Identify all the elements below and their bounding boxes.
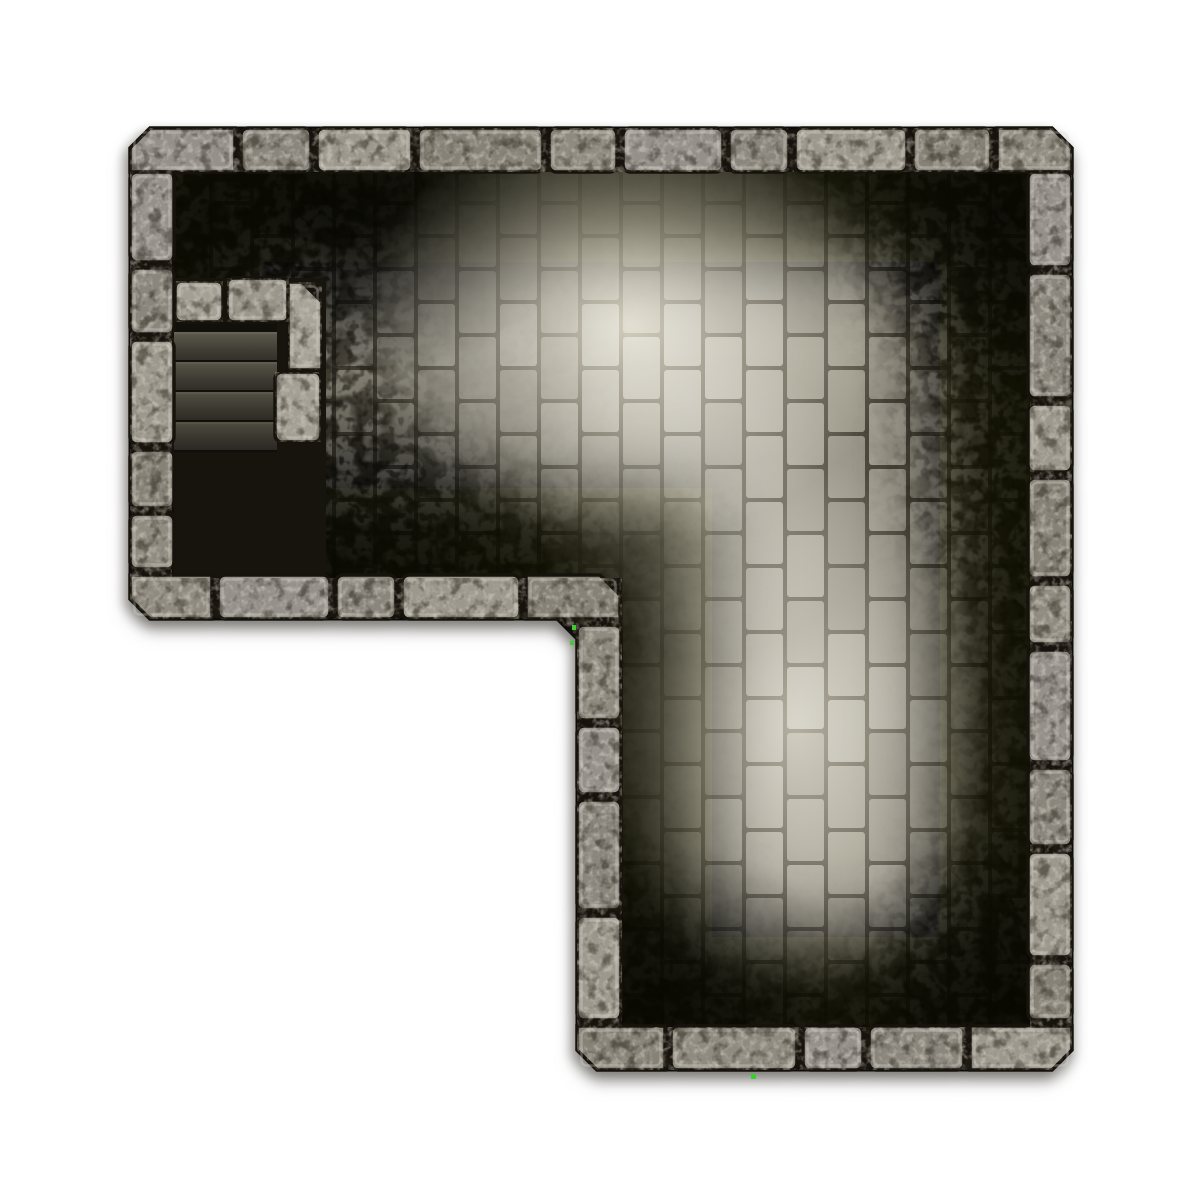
dungeon-room xyxy=(0,0,1200,1200)
grid-marker-artifact xyxy=(572,625,576,630)
grid-marker-artifact xyxy=(751,1074,756,1079)
dungeon-map-canvas xyxy=(0,0,1200,1200)
stair-step xyxy=(174,332,277,361)
grid-marker-artifact xyxy=(570,641,574,645)
dungeon-map xyxy=(0,0,1200,1200)
page xyxy=(0,0,1200,1200)
